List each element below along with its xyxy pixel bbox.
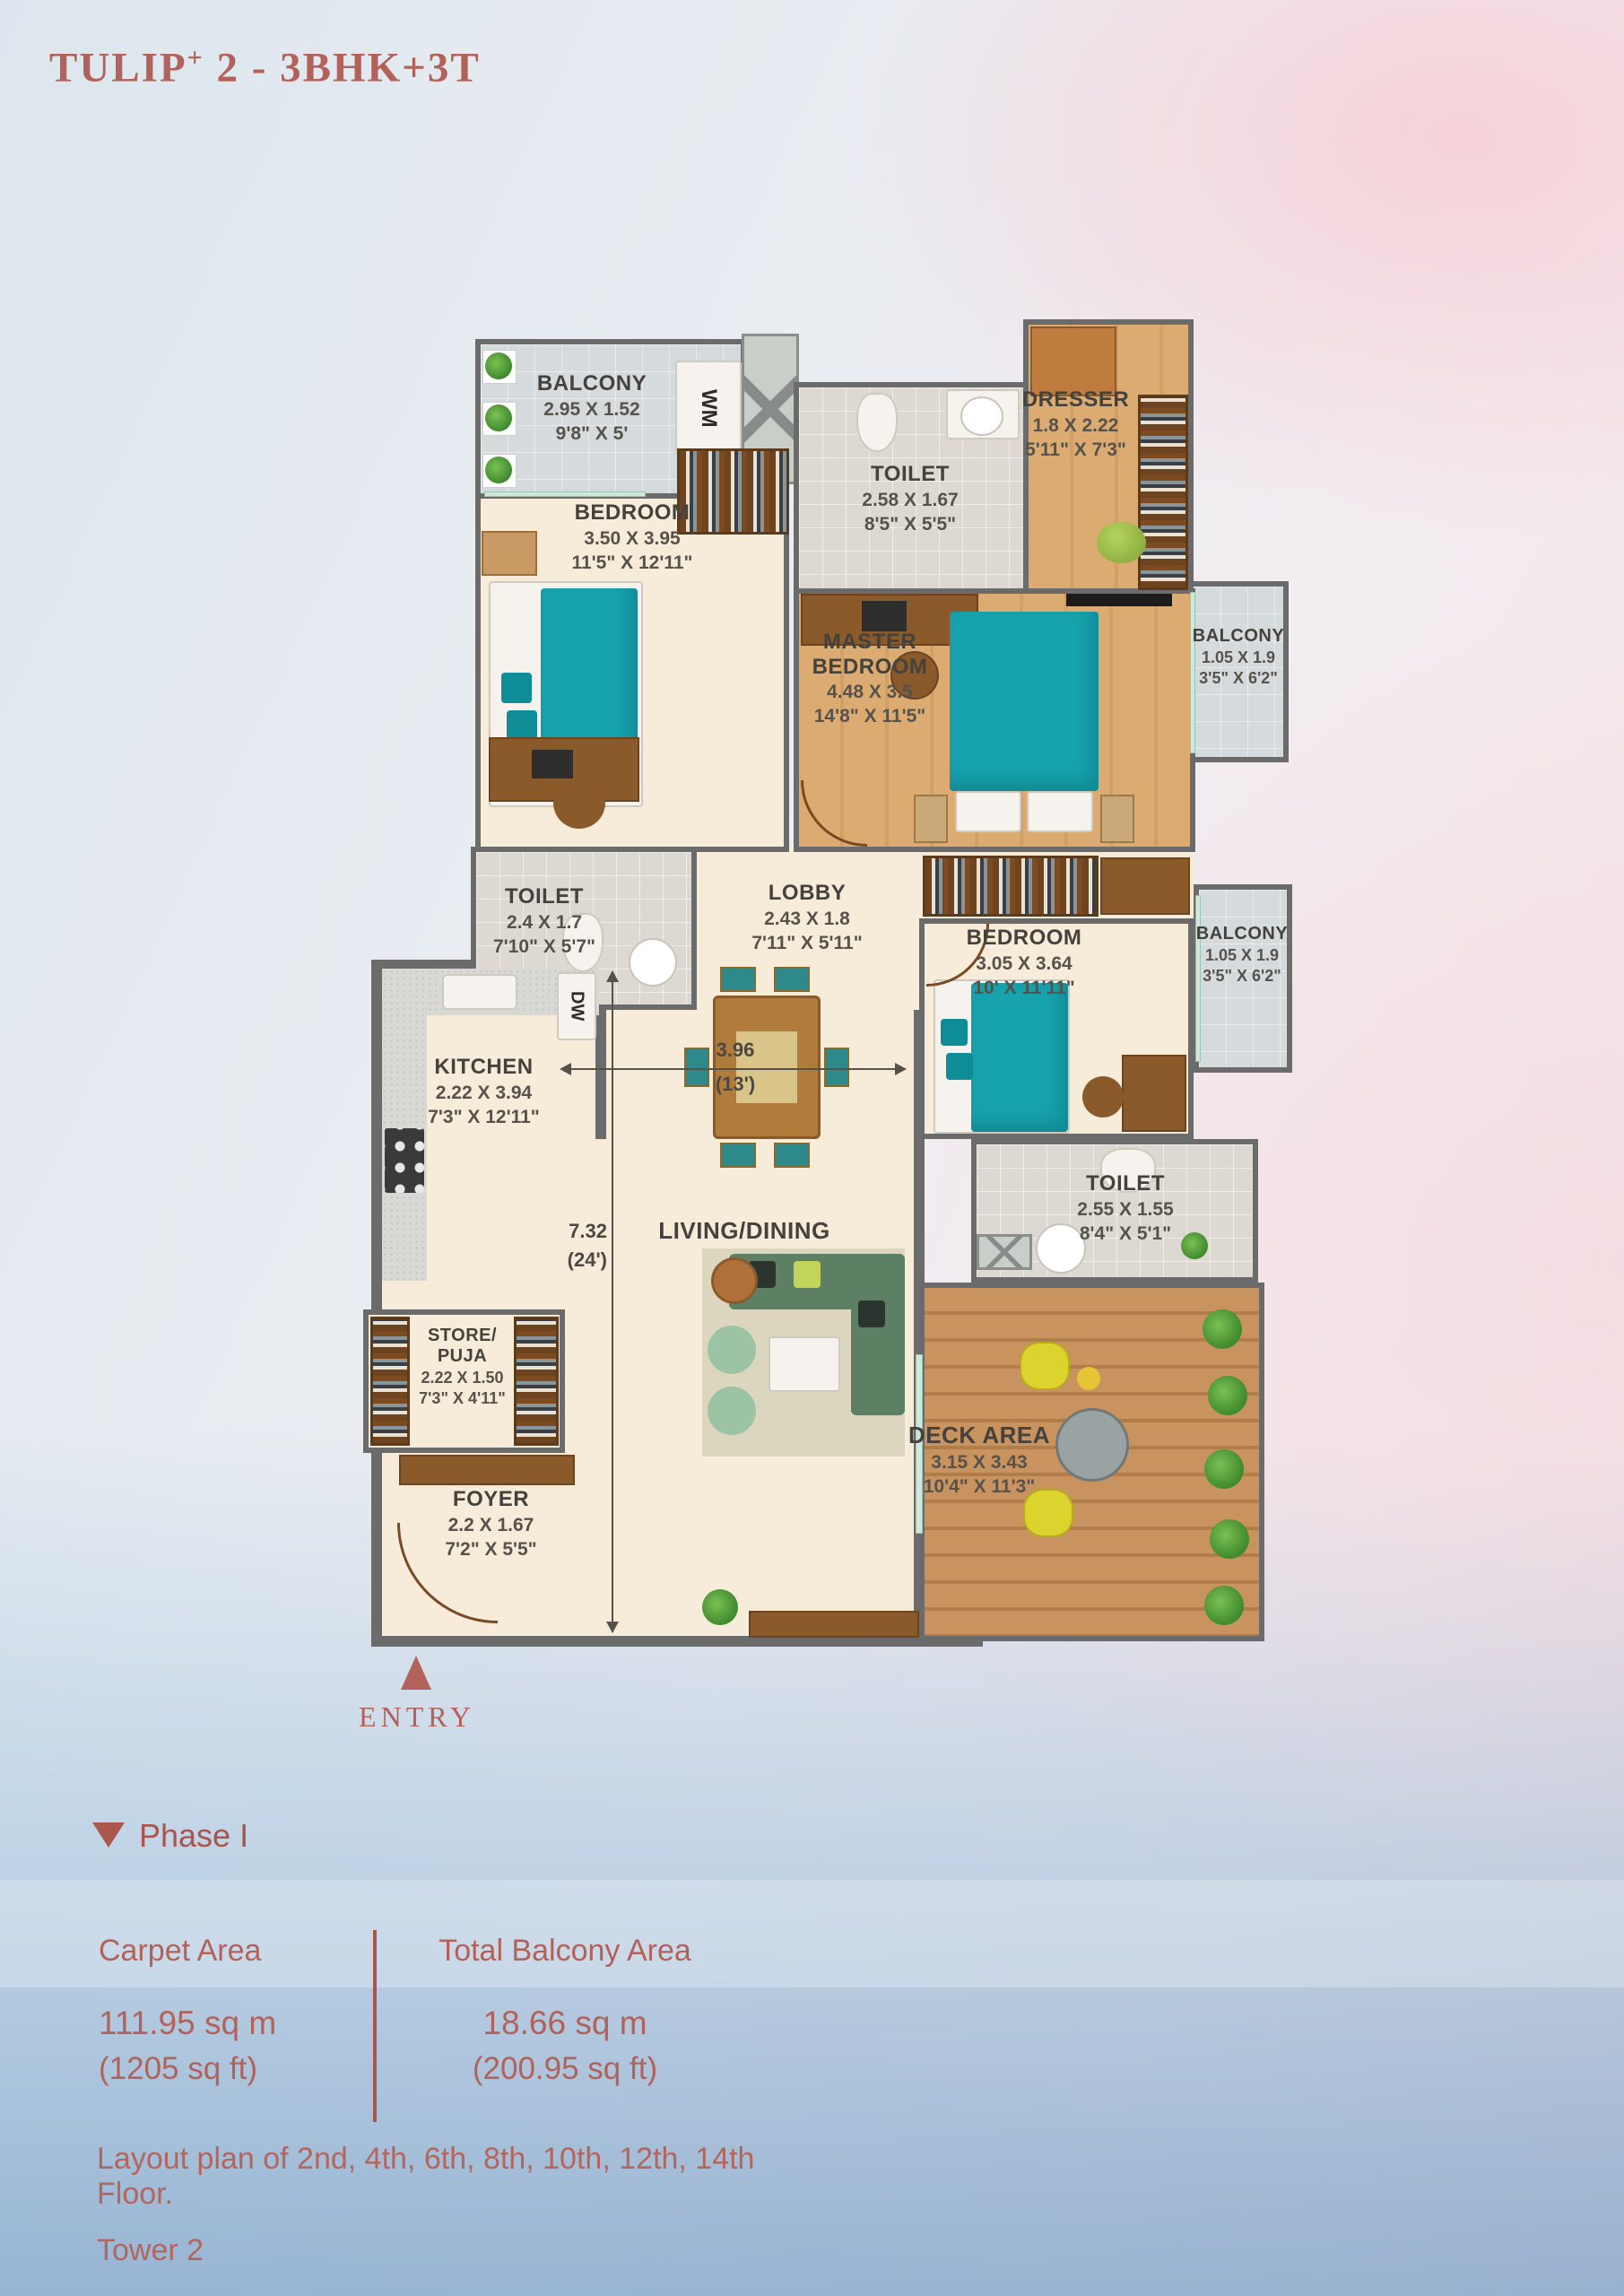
bedroom2-pillow-2 [946,1053,973,1080]
dim-height-ft: (24') [541,1248,607,1272]
master-bed [950,612,1099,791]
balcony-plant-icon-1 [485,352,512,379]
sofa-pillow-3 [858,1300,885,1327]
bedroom1-pillow-1 [501,673,532,703]
bedroom2-bed [971,983,1068,1132]
dim-width-line [565,1068,906,1070]
dresser-bench [1030,326,1116,396]
page-title: TULIP+ 2 - 3BHK+3T [49,43,481,92]
master-tv [1066,594,1172,606]
foyer-label: FOYER 2.2 X 1.67 7'2" X 5'5" [413,1487,569,1561]
carpet-area-label: Carpet Area [99,1934,323,1969]
dim-width-m: 3.96 [682,1039,789,1062]
title-rest: 2 - 3BHK+3T [204,45,481,91]
master-laptop [862,601,907,631]
entry-label: ENTRY [336,1700,498,1734]
store-cabinet-right [514,1317,559,1446]
lobby-label: LOBBY 2.43 X 1.8 7'11" X 5'11" [731,881,883,954]
title-main: TULIP [49,45,187,91]
carpet-area-value: 111.95 sq m [99,2005,323,2042]
living-plant-icon [702,1589,738,1625]
armchair-1 [708,1326,756,1374]
tv-console [749,1611,919,1638]
balcony-plant-icon-3 [485,457,512,483]
toilet-br-vent [977,1234,1032,1270]
bedroom2-dresser-desk [1100,857,1190,915]
dim-width-arrow-right [895,1063,907,1075]
balcony-plant-icon-2 [485,404,512,431]
toilet-mid-label: TOILET 2.4 X 1.7 7'10" X 5'7" [473,884,616,958]
store-puja-label: STORE/ PUJA 2.22 X 1.50 7'3" X 4'11" [406,1326,518,1407]
dining-chair-2 [774,967,810,992]
toilet-top-label: TOILET 2.58 X 1.67 8'5" X 5'5" [825,462,995,535]
dining-chair-4 [774,1143,810,1168]
dresser-wardrobe [1138,395,1188,590]
deck-plant-icon-5 [1204,1586,1244,1625]
balcony-top-glass [484,491,646,497]
toilet-top-wc [856,393,898,452]
dining-chair-6 [824,1048,849,1087]
footer-note: Layout plan of 2nd, 4th, 6th, 8th, 10th,… [97,2142,832,2268]
bedroom2-wardrobe [923,856,1099,917]
living-dining-label: LIVING/DINING [650,1218,838,1245]
dining-chair-3 [720,1143,756,1168]
master-pillow-2 [1027,791,1093,832]
kitchen-label: KITCHEN 2.22 X 3.94 7'3" X 12'11" [410,1055,558,1128]
balcony-r2-label: BALCONY 1.05 X 1.9 3'5" X 6'2" [1190,924,1294,985]
balcony-area-label: Total Balcony Area [421,1934,708,1969]
kitchen-stove [385,1128,424,1193]
footer-line-2: Tower 2 [97,2233,832,2268]
toilet-top-sink [960,396,1003,436]
dim-height-arrow-top [606,970,619,982]
footer-line-1: Layout plan of 2nd, 4th, 6th, 8th, 10th,… [97,2142,832,2212]
sofa-pillow-2 [794,1261,821,1288]
bedroom2-chair [1082,1076,1124,1118]
bedroom2-desk [1122,1055,1186,1132]
dishwasher: DW [557,972,596,1040]
bedroom1-pillow-2 [507,710,537,741]
dining-chair-1 [720,967,756,992]
phase-label: Phase I [139,1817,248,1855]
deck-plant-icon-2 [1208,1376,1247,1415]
dim-height-m: 7.32 [541,1220,607,1243]
deck-plant-icon-4 [1210,1519,1249,1559]
bedroom1-label: BEDROOM 3.50 X 3.95 11'5" X 12'11" [551,500,713,574]
balcony-area-block: Total Balcony Area 18.66 sq m (200.95 sq… [421,1934,708,2087]
bedroom2-label: BEDROOM 3.05 X 3.64 10' X 11'11" [930,926,1118,999]
carpet-area-block: Carpet Area 111.95 sq m (1205 sq ft) [99,1934,323,2087]
deck-chair-1 [1020,1342,1070,1390]
coffee-table-round [711,1257,758,1304]
entry-arrow-icon [401,1656,431,1690]
toilet-mid-sink [629,938,677,987]
store-cabinet-left [370,1317,410,1446]
floor-plan: WM BALCONY 2.95 X 1.52 9'8" X 5' TOILET … [327,296,1300,1650]
master-bedroom-label: MASTER BEDROOM 4.48 X 3.5 14'8" X 11'5" [789,630,951,727]
center-table [769,1336,840,1392]
deck-plant-icon-1 [1203,1309,1242,1349]
balcony-r1-label: BALCONY 1.05 X 1.9 3'5" X 6'2" [1186,626,1290,687]
dishwasher-label: DW [567,991,587,1021]
dim-height-line [612,979,613,1632]
master-nightstand-1 [914,795,948,843]
dresser-beanbag [1097,522,1146,563]
toilet-br-label: TOILET 2.55 X 1.55 8'4" X 5'1" [1036,1171,1215,1245]
master-pillow-1 [955,791,1021,832]
balcony-area-value: 18.66 sq m [421,2005,708,2042]
deck-plate-1 [1077,1367,1100,1390]
armchair-2 [708,1387,756,1435]
washing-machine-label: WM [696,389,721,428]
foyer-bench [399,1455,575,1485]
dresser-label: DRESSER 1.8 X 2.22 5'11" X 7'3" [1011,387,1141,461]
bedroom1-laptop [532,750,573,778]
deck-plant-icon-3 [1204,1449,1244,1489]
bedroom1-side-table [482,531,537,576]
title-sup: + [187,43,204,73]
brochure-page: TULIP+ 2 - 3BHK+3T WM BALCONY 2.95 X 1.5… [0,0,1624,2296]
dim-width-arrow-left [560,1063,571,1075]
balcony-area-alt: (200.95 sq ft) [421,2051,708,2087]
balcony-top-label: BALCONY 2.95 X 1.52 9'8" X 5' [511,371,673,445]
washing-machine: WM [675,361,742,456]
phase-triangle-icon [92,1822,125,1848]
master-nightstand-2 [1100,795,1134,843]
dim-height-arrow-bottom [606,1622,619,1633]
sofa-right [851,1254,905,1415]
carpet-area-alt: (1205 sq ft) [99,2051,323,2087]
deck-area-label: DECK AREA 3.15 X 3.43 10'4" X 11'3" [885,1422,1073,1498]
areas-divider [373,1930,377,2122]
dim-width-ft: (13') [682,1073,789,1096]
wall-left [371,960,382,1647]
kitchen-sink [442,974,517,1010]
bedroom2-pillow-1 [941,1019,968,1046]
